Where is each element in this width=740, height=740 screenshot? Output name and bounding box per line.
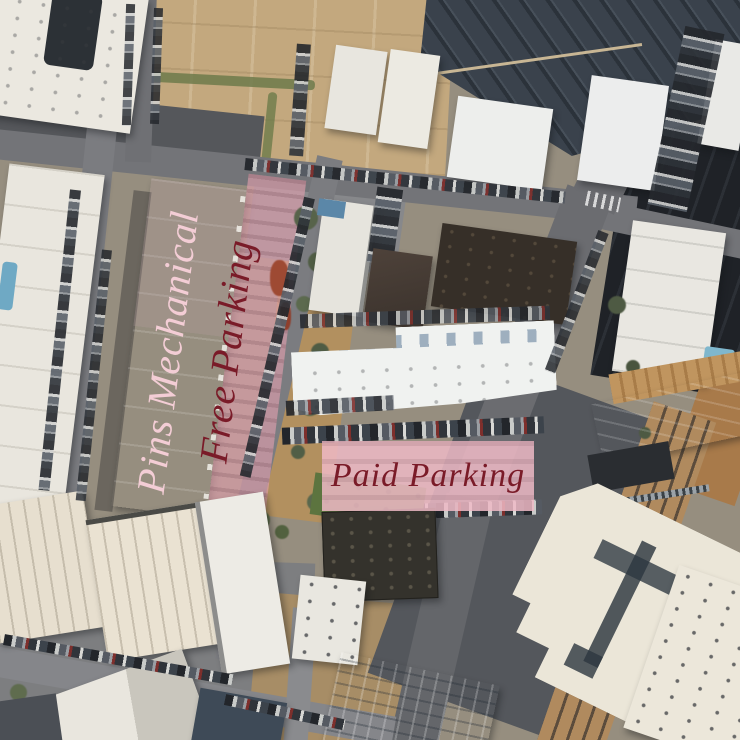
building-small-white-south <box>292 575 366 665</box>
blue-roof-section <box>317 198 346 219</box>
paid-parking-label: Paid Parking <box>331 459 525 493</box>
aerial-satellite-map: Paid Parking Pins Mechanical Free Parkin… <box>0 0 740 740</box>
apartment-roof-units <box>0 0 138 128</box>
warehouse-southwest-1 <box>0 491 104 644</box>
building-dark-corner-southwest <box>0 693 64 740</box>
tree-row-main-road <box>608 296 626 314</box>
building-white-roof-north <box>447 96 553 191</box>
paid-parking-highlight: Paid Parking <box>322 441 534 511</box>
